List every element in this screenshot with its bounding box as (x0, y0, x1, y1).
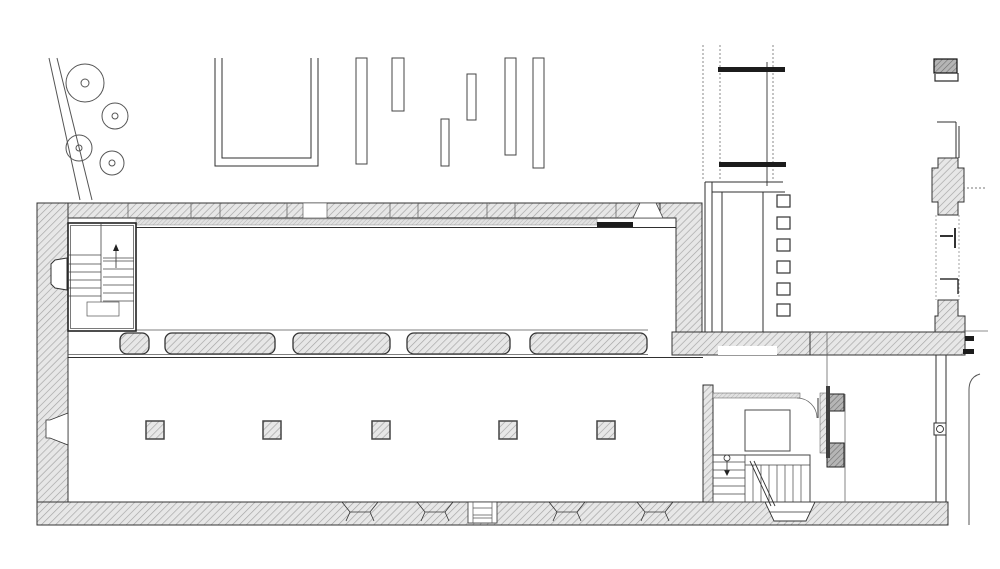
pilaster-square (777, 283, 790, 295)
tree-trunk (81, 79, 89, 87)
pilaster-square (777, 195, 790, 207)
pilaster-square (777, 217, 790, 229)
west-wall-buttress-niche (51, 258, 67, 290)
south-wall-door (468, 502, 497, 523)
south-exit-splay (765, 502, 815, 521)
northeast-corner-wall (660, 203, 702, 332)
door-swing-arc (797, 398, 817, 418)
east-pier-lower (935, 300, 965, 332)
northeast-structures (932, 59, 988, 525)
ne-wall-line (937, 122, 959, 158)
north-wall-window (303, 203, 327, 218)
wall-fragment (467, 74, 476, 120)
middle-wall-east-2 (810, 332, 965, 355)
planter-edge (215, 58, 318, 166)
tree-canopy (100, 151, 124, 175)
sill-dark-segment (597, 222, 633, 227)
tree-canopy (102, 103, 128, 129)
hall-column (499, 421, 517, 439)
entrance-canopy (703, 45, 786, 186)
east-thin-wall (934, 355, 946, 502)
site-planter-outline (215, 58, 318, 166)
hall-column (146, 421, 164, 439)
wall-fragment (392, 58, 404, 111)
stairwell-secondary (713, 455, 810, 506)
tree-trunk (109, 160, 115, 166)
pilaster-square (777, 239, 790, 251)
hall-column (372, 421, 390, 439)
path-edge-line (49, 58, 80, 200)
planter-edge (222, 58, 311, 158)
wall-fragment (356, 58, 367, 164)
room-furniture (745, 410, 790, 451)
ne-pier-upper (932, 158, 964, 215)
east-dotted-wall (936, 215, 959, 300)
ne-dark-block (934, 59, 957, 73)
south-door-opening (468, 502, 497, 523)
entrance-corridor (705, 182, 785, 332)
tree-trunk (112, 113, 118, 119)
hall-column (597, 421, 615, 439)
corridor-pilaster-squares (777, 195, 790, 316)
floor-plan-canvas (0, 0, 1000, 569)
room-north-wall (713, 393, 800, 398)
stair-room-west-pier (703, 385, 713, 502)
canopy-beam (718, 67, 785, 72)
hall-pier (120, 333, 149, 354)
north-wall-band (68, 203, 660, 218)
masonry-walls (37, 203, 965, 525)
site-wall-fragments (356, 58, 544, 168)
pilaster-square (777, 304, 790, 316)
middle-wall-opening (718, 346, 777, 355)
wall-fragment (533, 58, 544, 168)
hall-pier (293, 333, 390, 354)
hall-pier (407, 333, 510, 354)
sill-strip (136, 219, 597, 225)
room-dark-post (826, 386, 830, 458)
lower-hall-columns (146, 421, 615, 439)
east-bracket-2 (940, 279, 958, 294)
stairwell-main (68, 223, 136, 331)
corridor-walls (705, 182, 785, 332)
west-wall (37, 203, 68, 525)
wall-stub-1 (965, 336, 974, 341)
hall-column (263, 421, 281, 439)
east-kerb-curve (969, 374, 980, 525)
wall-fragment (505, 58, 516, 155)
tree-canopy (66, 64, 104, 102)
east-bracket-1 (940, 228, 955, 248)
canopy-beam (719, 162, 786, 167)
hall-pier (530, 333, 647, 354)
room-table (745, 410, 790, 451)
room-east-wall (820, 393, 827, 453)
wall-fragment (441, 119, 449, 166)
ne-bracket (935, 73, 958, 81)
pilaster-square (777, 261, 790, 273)
middle-pier-row (120, 333, 647, 354)
wall-stub-2 (963, 349, 974, 354)
east-duct-box (934, 423, 946, 435)
site-trees (66, 64, 128, 175)
floor-plan-drawing (0, 0, 1000, 569)
hall-pier (165, 333, 275, 354)
